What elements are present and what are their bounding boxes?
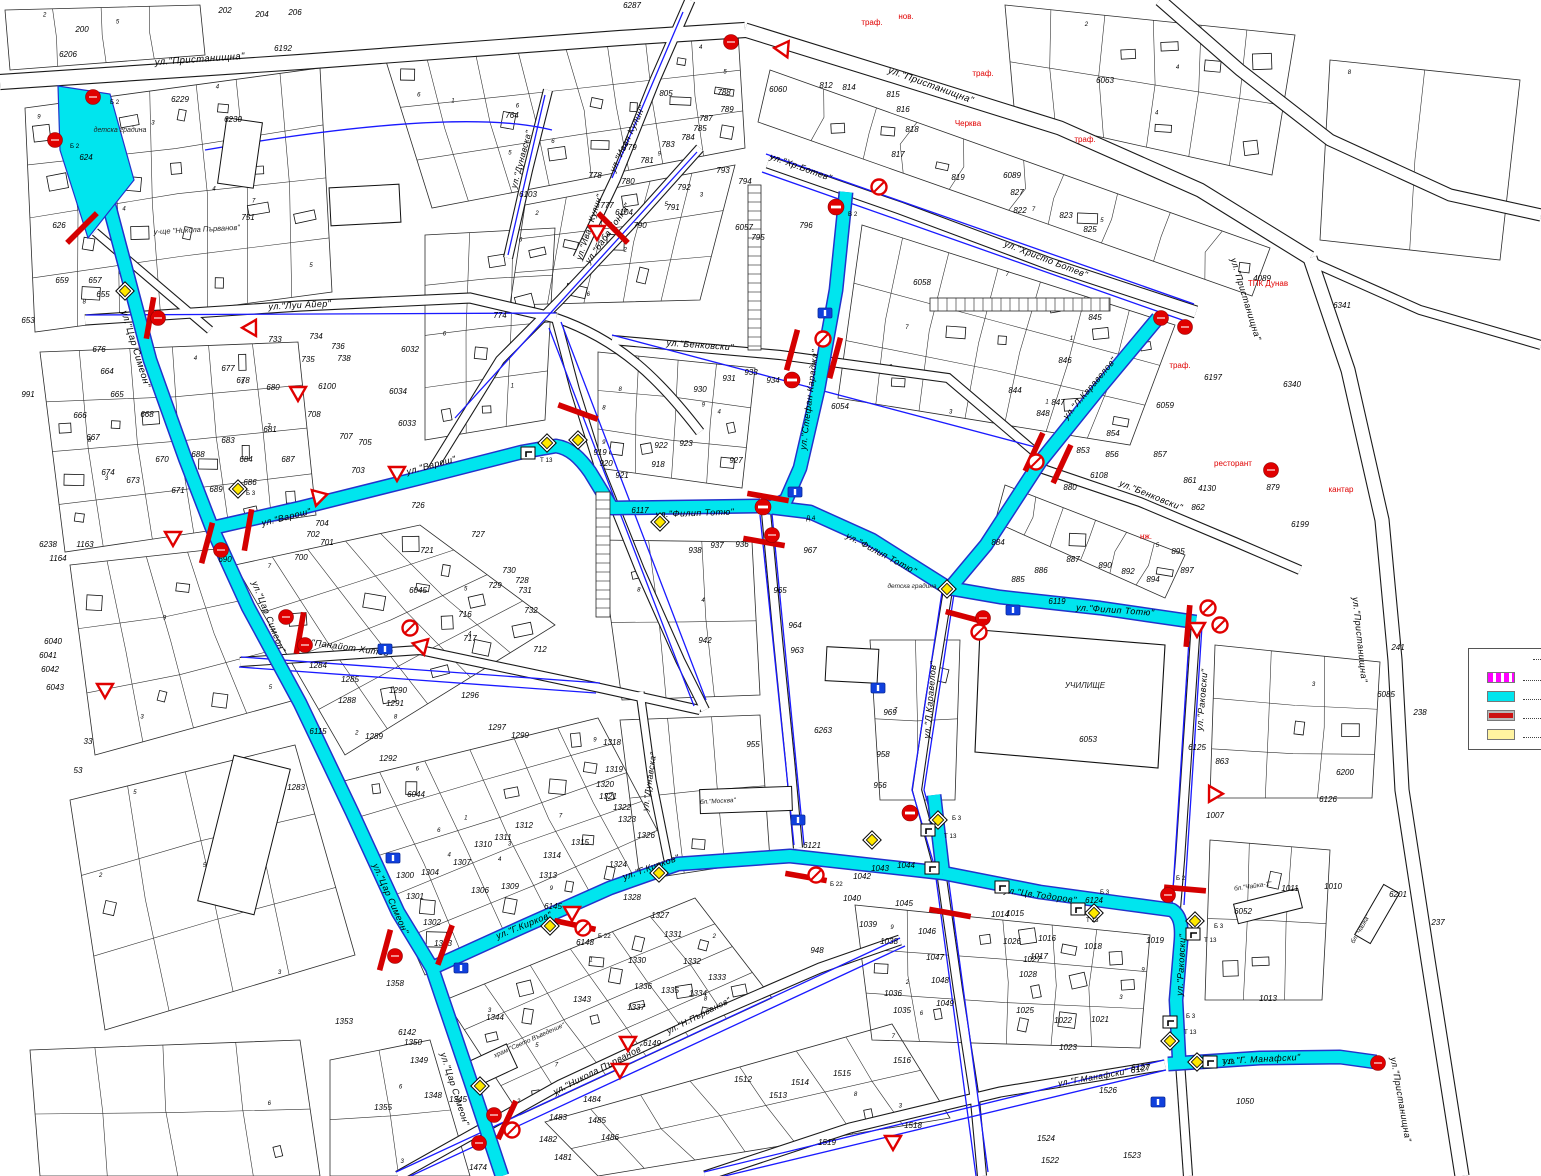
building: [529, 247, 546, 258]
parcel-number: 934: [766, 376, 780, 385]
parcel-number: 791: [666, 203, 679, 212]
parcel-number: 1318: [603, 738, 621, 747]
parcel-number: 6229: [171, 95, 189, 104]
closure-bar: [784, 329, 800, 371]
parcel-number: 653: [21, 316, 35, 325]
parcel-number: 6126: [1319, 795, 1337, 804]
parcel-number: 6040: [44, 637, 62, 646]
parcel-line: [33, 238, 330, 278]
parcel-number: 6033: [398, 419, 416, 428]
parcel-number: 884: [991, 538, 1005, 547]
parcel-number: 667: [86, 433, 100, 442]
building: [692, 839, 705, 850]
parcel-number: 751: [241, 213, 254, 222]
parcel-number: 787: [699, 114, 713, 123]
parcel-number: 1315: [571, 838, 589, 847]
parcel-number: 814: [842, 83, 856, 92]
parcel-number: 854: [1106, 429, 1120, 438]
sign-code-label: Т 13: [540, 457, 553, 464]
sub-number: 9: [550, 886, 554, 892]
sub-number: 4: [699, 45, 703, 51]
parcel-number: 1025: [1016, 1006, 1034, 1015]
parcel-number: 1330: [628, 956, 646, 965]
sub-number: 7: [1006, 272, 1010, 278]
block-outline: [600, 540, 760, 700]
sub-number: 1: [511, 383, 514, 389]
parcel-number: 6085: [1377, 690, 1395, 699]
parcel-number: 886: [1034, 566, 1048, 575]
parcel-number: 701: [320, 538, 333, 547]
red-label: кантар: [1328, 485, 1354, 494]
parcel-number: 1288: [338, 696, 356, 705]
sub-number: 3: [151, 120, 155, 126]
parcel-number: 657: [88, 276, 102, 285]
parcel-number: 848: [1036, 409, 1050, 418]
street-label: ул."Раковски": [1174, 933, 1187, 997]
block-outline: [855, 905, 1150, 1048]
cad-map-page: 9783434437561656494526253661889947937117…: [0, 0, 1541, 1176]
sub-number: 6: [516, 103, 520, 109]
parcel-number: 1028: [1019, 970, 1037, 979]
parcel-number: 861: [1183, 476, 1196, 485]
red-label: траф.: [861, 18, 882, 27]
parcel-number: 726: [411, 501, 425, 510]
parcel-number: 666: [73, 411, 87, 420]
building: [64, 474, 84, 485]
road-surface: [240, 650, 700, 710]
sub-number: 1: [1070, 336, 1073, 342]
poi-label: бл."Чайка-1": [1234, 879, 1273, 892]
parcel-number: 1514: [791, 1078, 809, 1087]
parcel-number: 1048: [931, 976, 949, 985]
parcel-number: 6117: [631, 506, 649, 515]
parcel-number: 6059: [1156, 401, 1174, 410]
parcel-number: 897: [1180, 566, 1194, 575]
building: [933, 1009, 942, 1020]
building: [1031, 985, 1042, 999]
no-stopping-sign-icon: [972, 625, 987, 640]
building: [1121, 49, 1136, 59]
parcel-line: [515, 256, 711, 272]
building: [441, 408, 452, 421]
sub-number: 1: [1045, 400, 1048, 406]
parcel-line: [875, 719, 958, 721]
parcel-number: 967: [803, 546, 817, 555]
sub-number: 7: [252, 199, 256, 205]
parcel-number: 680: [266, 383, 280, 392]
building: [441, 616, 453, 630]
sign-code-label: Т 13: [1184, 1029, 1197, 1036]
parcel-number: 823: [1059, 211, 1073, 220]
parcel-number: 784: [681, 133, 695, 142]
sub-number: 3: [700, 193, 704, 199]
parcel-number: 1348: [424, 1091, 442, 1100]
parcel-number: 1344: [486, 1013, 504, 1022]
building: [131, 226, 149, 239]
parcel-line: [1265, 651, 1271, 798]
parcel-number: 764: [505, 111, 519, 120]
parcel-number: 238: [1412, 708, 1427, 717]
parcel-number: 922: [654, 441, 668, 450]
building: [217, 104, 228, 113]
sub-number: 6: [920, 1011, 924, 1017]
sub-number: 9: [602, 440, 606, 446]
parcel-number: 6058: [913, 278, 931, 287]
parcel-number: 6053: [1079, 735, 1097, 744]
parcel-number: 1358: [386, 979, 404, 988]
sign-cluster-icon: [1161, 888, 1176, 903]
parcel-number: 712: [533, 645, 547, 654]
parcel-number: 1328: [623, 893, 641, 902]
sign-cluster-icon: [487, 1108, 502, 1123]
parcel-number: 1011: [1281, 884, 1298, 893]
building-large: [1234, 888, 1303, 923]
building: [474, 347, 487, 360]
sub-number: 9: [1141, 968, 1145, 974]
parcel-line: [379, 1050, 399, 1176]
building: [286, 491, 296, 503]
no-stopping-sign-icon: [403, 621, 418, 636]
sub-number: 2: [905, 980, 910, 986]
parcel-number: 674: [101, 468, 115, 477]
sign-cluster-icon: [1371, 1056, 1386, 1071]
parcel-number: 792: [677, 183, 691, 192]
legend-row: [1487, 687, 1541, 706]
poi-label: храм "Свето Въведение": [492, 1021, 567, 1060]
parcel-number: 676: [92, 345, 106, 354]
parcel-line: [1213, 698, 1377, 709]
parcel-number: 1324: [609, 860, 627, 869]
sign-code-label: Б 3: [952, 815, 962, 822]
parcel-number: 716: [458, 610, 472, 619]
building: [831, 123, 845, 133]
sign-code-label: Б 3: [1186, 1013, 1196, 1020]
info-sign-icon: [378, 644, 392, 654]
building: [891, 378, 905, 387]
parcel-number: 1309: [501, 882, 519, 891]
parcel-number: 863: [1215, 757, 1229, 766]
blue-line: [948, 876, 988, 1172]
building: [640, 443, 652, 455]
sub-number: 7: [555, 1063, 559, 1069]
parcel-number: 812: [819, 81, 833, 90]
parcel-number: 1036: [884, 989, 902, 998]
parcel-number: 1515: [833, 1069, 851, 1078]
parcel-number: 6125: [1188, 743, 1206, 752]
parcel-number: 6201: [1389, 890, 1407, 899]
parcel-number: 794: [738, 177, 752, 186]
parcel-number: 1047: [926, 953, 944, 962]
parcel-line: [547, 197, 566, 304]
parcel-number: 857: [1153, 450, 1167, 459]
route-cyan: [950, 318, 1158, 588]
street-label: ул."Л.Каравелов": [922, 660, 939, 740]
parcel-number: 1331: [664, 930, 682, 939]
parcel-number: 818: [905, 125, 919, 134]
parcel-number: 815: [886, 90, 900, 99]
street-label: ул."Филип Тотю": [654, 507, 734, 520]
sub-number: 3: [278, 970, 282, 976]
road-surface: [0, 30, 745, 82]
parcel-number: 6287: [623, 1, 641, 10]
parcel-number: 204: [254, 10, 269, 19]
sub-number: 4: [1176, 65, 1180, 71]
parcel-number: 735: [301, 355, 315, 364]
parcel-number: 688: [191, 450, 205, 459]
yield-sign-icon: [242, 320, 263, 340]
sign-code-label: В 2: [848, 211, 858, 218]
parcel-number: 6148: [576, 938, 594, 947]
sub-number: 8: [619, 387, 623, 393]
building: [47, 173, 69, 191]
building: [720, 125, 734, 139]
building: [1109, 951, 1123, 965]
parcel-number: 1523: [1123, 1151, 1141, 1160]
parcel-number: 1299: [511, 731, 529, 740]
t-junction-sign-icon: [1071, 903, 1085, 915]
parcel-number: 681: [263, 425, 276, 434]
parcel-number: 677: [221, 364, 235, 373]
parcel-number: 819: [951, 173, 965, 182]
building: [1061, 944, 1077, 955]
map-canvas[interactable]: 9783434437561656494526253661889947937117…: [0, 0, 1541, 1176]
parcel-number: 894: [1146, 575, 1160, 584]
parcel-number: 918: [651, 460, 665, 469]
parcel-number: 1314: [543, 851, 561, 860]
parcel-number: 6200: [1336, 768, 1354, 777]
parcel-number: 774: [493, 311, 507, 320]
parcel-number: 963: [790, 646, 804, 655]
parcel-number: 937: [710, 541, 724, 550]
parcel-number: 844: [1008, 386, 1022, 395]
parcel-number: 624: [79, 153, 93, 162]
building: [273, 1146, 283, 1158]
parcel-number: 206: [287, 8, 302, 17]
parcel-number: 1021: [1091, 1015, 1109, 1024]
parcel-line: [1317, 656, 1324, 798]
parcel-number: 671: [171, 486, 184, 495]
poi-label: у-ще "Никола Първанов": [153, 223, 241, 237]
building: [504, 787, 519, 799]
parcel-line: [1285, 847, 1292, 1000]
parcel-number: 1304: [421, 868, 439, 877]
parcel-number: 781: [640, 156, 653, 165]
parcel-number: 890: [1098, 561, 1112, 570]
parcel-line: [236, 79, 247, 303]
sub-number: 2: [354, 730, 359, 736]
parcel-line: [671, 360, 678, 478]
parcel-number: 665: [110, 390, 124, 399]
legend-row: [1487, 668, 1541, 687]
parcel-number: 6103: [519, 190, 537, 199]
parcel-number: 730: [502, 566, 516, 575]
sub-number: 4: [122, 207, 126, 213]
sub-number: 2: [98, 873, 103, 879]
building: [485, 1032, 498, 1042]
sub-number: 2: [1084, 22, 1089, 28]
legend-item-yellow-swatch: [1487, 729, 1515, 740]
red-label: траф.: [1169, 361, 1190, 370]
sub-number: 2: [712, 934, 717, 940]
parcel-number: 1015: [1006, 909, 1024, 918]
parcel-number: 659: [55, 276, 69, 285]
sub-number: 8: [83, 299, 87, 305]
parcel-number: 1312: [515, 821, 533, 830]
parcel-number: 795: [751, 233, 765, 242]
parcel-number: 655: [96, 290, 110, 299]
building: [363, 593, 386, 610]
parcel-number: 626: [52, 221, 66, 230]
building: [548, 146, 567, 160]
sub-number: 4: [216, 84, 220, 90]
sub-number: 6: [399, 1084, 403, 1090]
no-entry-sign-icon: [902, 805, 918, 821]
sign-cluster-icon: [86, 90, 101, 105]
parcel-number: 1482: [539, 1135, 557, 1144]
sign-code-label: Б 22: [830, 881, 843, 888]
parcel-line: [128, 786, 169, 1011]
parcel-number: 948: [810, 946, 824, 955]
parcel-number: 1035: [893, 1006, 911, 1015]
parcel-line: [46, 385, 302, 402]
parcel-number: 6340: [1283, 380, 1301, 389]
sub-number: 6: [416, 767, 420, 773]
parcel-number: 827: [1010, 188, 1024, 197]
sub-number: 6: [268, 1101, 272, 1107]
parcel-number: 6238: [39, 540, 57, 549]
parcel-number: 1302: [423, 918, 441, 927]
sub-number: 7: [1032, 207, 1036, 213]
parcel-number: 678: [236, 376, 250, 385]
parcel-line: [425, 275, 553, 285]
no-stopping-sign-icon: [505, 1123, 520, 1138]
parcel-line: [796, 1051, 853, 1134]
parcel-number: 705: [358, 438, 372, 447]
parcel-line: [262, 550, 453, 612]
building: [1223, 961, 1239, 977]
sub-number: 6: [551, 139, 555, 145]
poi-label: детска градина: [94, 126, 147, 134]
parcel-number: 785: [693, 124, 707, 133]
building: [468, 594, 485, 608]
parcel-number: 6052: [1234, 907, 1252, 916]
legend-row: [1487, 725, 1541, 744]
building: [239, 354, 247, 370]
sub-number: 8: [637, 587, 641, 593]
parcel-number: 927: [729, 456, 743, 465]
building: [946, 326, 966, 339]
parcel-number: 885: [1011, 575, 1025, 584]
t-junction-sign-icon: [1163, 1016, 1177, 1028]
parcel-number: 6100: [318, 382, 336, 391]
parcel-number: 955: [746, 740, 760, 749]
parcel-number: 1513: [769, 1091, 787, 1100]
parcel-number: 1040: [843, 894, 861, 903]
parcel-line: [381, 534, 511, 653]
building: [1243, 140, 1258, 155]
parcel-number: 1016: [1038, 934, 1056, 943]
parcel-number: 969: [883, 708, 897, 717]
parcel-number: 1291: [386, 699, 404, 708]
parcel-number: 816: [896, 105, 910, 114]
parcel-number: 1320: [596, 780, 614, 789]
sub-number: 6: [417, 93, 421, 99]
sub-number: 5: [309, 263, 313, 269]
parcel-number: 1284: [309, 661, 327, 670]
no-stopping-sign-icon: [816, 332, 831, 347]
building: [1069, 972, 1087, 989]
building: [935, 162, 948, 171]
sign-code-label: Б 3: [1100, 889, 1110, 896]
parcel-line: [101, 8, 106, 63]
parcel-number: 1044: [897, 861, 915, 870]
parcel-number: 930: [693, 385, 707, 394]
parcel-number: 790: [633, 221, 647, 230]
parcel-number: 1355: [374, 1103, 392, 1112]
parcel-number: 892: [1121, 567, 1135, 576]
parcel-number: 822: [1013, 206, 1027, 215]
no-stopping-sign-icon: [576, 921, 591, 936]
parcel-number: 6341: [1333, 301, 1351, 310]
parcel-number: 1524: [1037, 1134, 1055, 1143]
parcel-line: [919, 253, 949, 411]
building: [419, 899, 435, 914]
parcel-number: 200: [74, 25, 89, 34]
parcel-number: 1327: [651, 911, 669, 920]
parcel-number: 1334: [689, 989, 707, 998]
parcel-number: 1512: [734, 1075, 752, 1084]
parcel-number: 1522: [1041, 1156, 1059, 1165]
parcel-number: 728: [515, 576, 529, 585]
parcel-number: 933: [744, 368, 758, 377]
parcel-number: 1022: [1054, 1016, 1072, 1025]
sub-number: 4: [717, 409, 721, 415]
parcel-number: 1018: [1084, 942, 1102, 951]
info-sign-icon: [818, 308, 832, 318]
parcel-number: 1023: [1059, 1043, 1077, 1052]
building: [570, 733, 581, 748]
legend-item-cyan-label: [1523, 698, 1541, 700]
parcel-number: 1321: [599, 792, 617, 801]
sign-code-label: Т 13: [1222, 1059, 1235, 1066]
sign-code-label: Б 2: [110, 99, 120, 106]
road-casing: [1160, 0, 1541, 215]
building: [400, 69, 414, 80]
sub-number: 1: [464, 816, 467, 822]
building: [441, 565, 450, 577]
parcel-number: 703: [351, 466, 365, 475]
building: [176, 583, 190, 593]
street-label: ул."Пристанищна": [1388, 1055, 1413, 1143]
parcel-number: 1319: [605, 765, 623, 774]
parcel-number: 1164: [49, 554, 67, 563]
parcel-number: 825: [1083, 225, 1097, 234]
sub-number: 1: [589, 958, 592, 964]
parcel-number: 1306: [471, 886, 489, 895]
parcel-number: 6115: [309, 727, 327, 736]
parcel-number: 1045: [895, 899, 913, 908]
parcel-number: 33: [84, 737, 93, 746]
parcel-number: 1322: [613, 803, 631, 812]
parcel-number: 1039: [859, 920, 877, 929]
building: [636, 267, 648, 284]
building: [119, 114, 139, 127]
red-label: траф.: [972, 69, 993, 78]
sub-number: 6: [437, 828, 441, 834]
sub-number: 5: [1100, 218, 1104, 224]
parcel-number: 1484: [583, 1095, 601, 1104]
parcel-number: 845: [1088, 313, 1102, 322]
